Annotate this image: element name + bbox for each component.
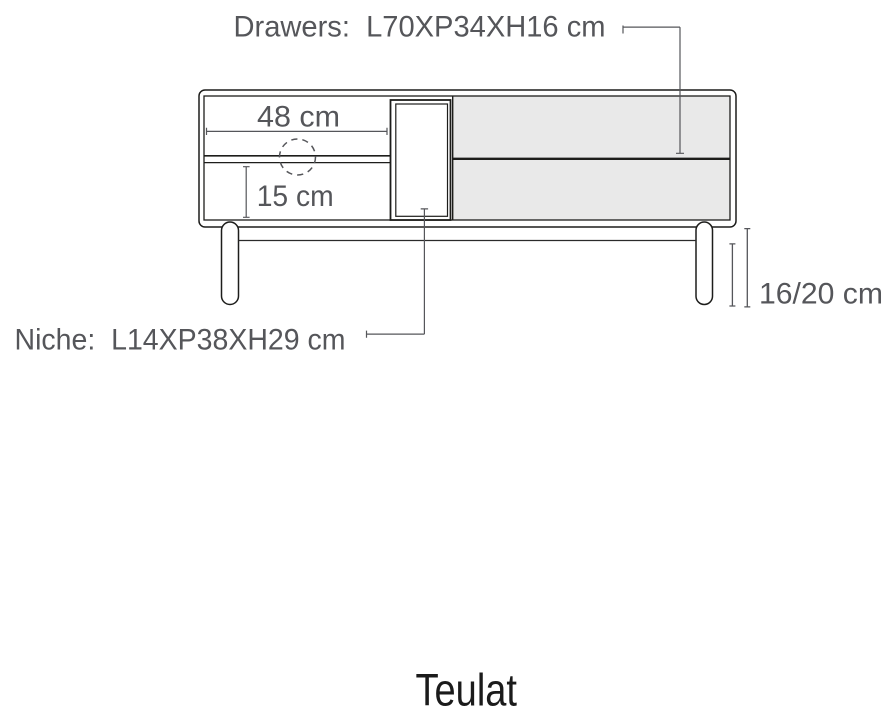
- svg-text:Teulat: Teulat: [416, 665, 518, 716]
- svg-text:Drawers: L70XP34XH16 cm: Drawers: L70XP34XH16 cm: [234, 10, 606, 43]
- svg-text:15 cm: 15 cm: [257, 180, 334, 213]
- svg-text:Niche: L14XP38XH29 cm: Niche: L14XP38XH29 cm: [15, 324, 346, 357]
- svg-text:16/20 cm: 16/20 cm: [759, 277, 883, 310]
- svg-text:48 cm: 48 cm: [257, 100, 340, 133]
